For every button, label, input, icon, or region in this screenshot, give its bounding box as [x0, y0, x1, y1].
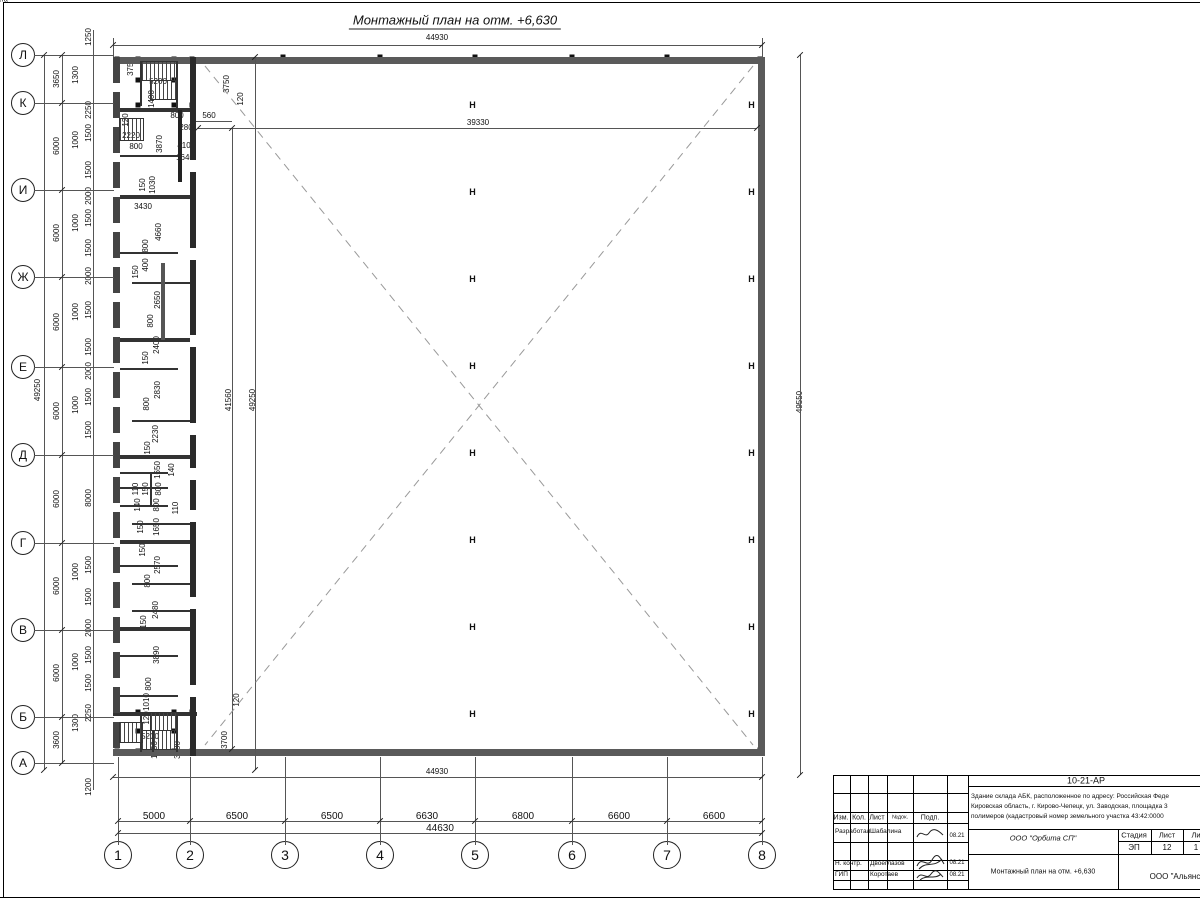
tb-date-2: 08.21 [949, 860, 964, 866]
tb-role-3: ГИП [835, 872, 848, 879]
project-address-line1: Здание склада АБК, расположенное по адре… [971, 794, 1169, 801]
tb-name-3: Коротаев [870, 872, 898, 879]
tb-sheets-label: Ли [1191, 831, 1200, 839]
tb-role-2: Н. контр. [835, 861, 862, 868]
drawing-sheet: Монтажный план на отм. +6,630 4493039330… [0, 0, 1200, 900]
tb-stage-label: Стадия [1121, 831, 1147, 839]
project-address-line3: полимеров (кадастровый номер земельного … [971, 814, 1164, 821]
tb-header-ndok: №док. [892, 815, 908, 821]
tb-sheet-value: 12 [1163, 844, 1172, 852]
tb-date-1: 08.21 [949, 833, 964, 839]
signature-1 [914, 826, 946, 842]
tb-sheet-label: Лист [1159, 831, 1175, 839]
tb-header-list: Лист [869, 815, 884, 822]
tb-sheets-value: 1 [1194, 844, 1198, 852]
tb-stage-value: ЭП [1128, 844, 1140, 852]
tb-name-2: Двоеглазов [870, 861, 905, 868]
tb-header-podp: Подп. [921, 815, 940, 822]
tb-org: ООО "Орбита СП" [1010, 834, 1077, 842]
tb-role-1: Разработал [835, 829, 870, 836]
tb-header-data: Дата [0, 0, 8, 4]
tb-date-3: 08.21 [949, 872, 964, 878]
doc-code: 10-21-АР [1067, 777, 1105, 786]
tb-header-izm: Изм. [834, 815, 849, 822]
tb-header-kol: Кол. [852, 815, 866, 822]
bracing-overlay [0, 0, 1200, 900]
project-address-line2: Кировская область, г. Кирово-Чепецк, ул.… [971, 804, 1168, 811]
tb-subtitle: Монтажный план на отм. +6,630 [991, 869, 1096, 876]
tb-name-1: Шабалина [870, 829, 901, 836]
signature-3 [914, 868, 946, 884]
tb-org2: ООО "Альянс [1150, 873, 1200, 881]
